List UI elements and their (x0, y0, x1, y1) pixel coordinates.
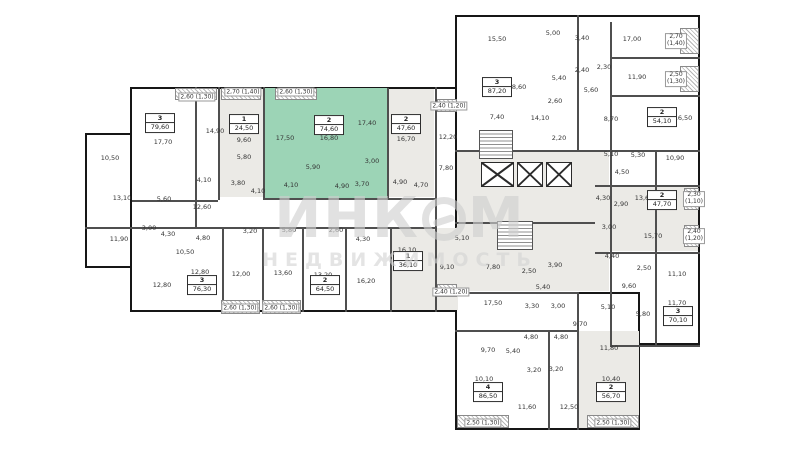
room-area-label: 5,60 (157, 195, 171, 203)
room-area-label: 3,20 (243, 227, 257, 235)
room-area-label: 17,40 (358, 119, 377, 127)
room-area-label: 8,70 (604, 115, 618, 123)
interior-wall (387, 88, 389, 198)
room-area-label: 4,40 (605, 252, 619, 260)
apartment-total-area: 70,10 (664, 317, 692, 325)
room-area-label: 2,60 (548, 97, 562, 105)
room-area-label: 9,60 (622, 282, 636, 290)
apartment-total-area: 47,70 (648, 201, 676, 209)
balcony-area-label: 2,60 (1,30) (178, 93, 215, 102)
floorplan-screenshot: 10,5013,1017,7014,905,604,1012,6011,903,… (0, 0, 800, 450)
room-area-label: 3,70 (355, 180, 369, 188)
room-area-label: 5,80 (636, 310, 650, 318)
room-area-label: 3,90 (548, 261, 562, 269)
interior-wall (455, 330, 577, 332)
balcony-area-label: 2,50 (1,30) (594, 419, 631, 428)
room-area-label: 4,10 (251, 187, 265, 195)
interior-wall (595, 185, 700, 187)
elevator-shaft-icon (481, 162, 514, 187)
interior-wall (610, 57, 700, 59)
balcony-area-label: 2,40 (1,20) (432, 288, 469, 297)
room-area-label: 4,80 (196, 234, 210, 242)
room-area-label: 2,60 (329, 226, 343, 234)
balcony-area-label: 2,70 (1,40) (224, 88, 261, 97)
room-area-label: 3,20 (549, 365, 563, 373)
room-area-label: 3,40 (575, 34, 589, 42)
room-area-label: 3,20 (527, 366, 541, 374)
room-area-label: 4,30 (161, 230, 175, 238)
room-area-label: 5,40 (506, 347, 520, 355)
room-area-label: 16,80 (320, 134, 339, 142)
staircase-icon (497, 221, 533, 250)
room-area-label: 3,00 (551, 302, 565, 310)
room-area-label: 2,30 (597, 63, 611, 71)
apartment-rooms-count: 2 (597, 383, 625, 392)
apartment-badge[interactable]: 254,10 (647, 107, 677, 127)
interior-wall (263, 87, 265, 198)
room-area-label: 9,70 (481, 346, 495, 354)
apartment-total-area: 56,70 (597, 393, 625, 401)
interior-wall (655, 150, 657, 345)
apartment-rooms-count: 2 (392, 115, 420, 124)
room-area-label: 4,30 (356, 235, 370, 243)
interior-wall (435, 87, 437, 312)
room-area-label: 9,10 (440, 263, 454, 271)
apartment-badge[interactable]: 379,60 (145, 113, 175, 133)
room-area-label: 12,20 (439, 133, 458, 141)
balcony-area-label: 2,60 (1,30) (277, 88, 314, 97)
apartment-badge[interactable]: 486,50 (473, 382, 503, 402)
interior-wall (610, 95, 700, 97)
room-area-label: 14,10 (531, 114, 550, 122)
room-area-label: 4,80 (524, 333, 538, 341)
apartment-badge[interactable]: 124,50 (229, 114, 259, 134)
room-area-label: 12,80 (153, 281, 172, 289)
room-area-label: 4,80 (554, 333, 568, 341)
room-area-label: 4,70 (414, 181, 428, 189)
balcony-area-label: 2,60 (1,30) (262, 304, 299, 313)
room-area-label: 3,00 (142, 224, 156, 232)
balcony-area-label: 2,30(1,10) (683, 191, 705, 207)
room-area-label: 13,60 (274, 269, 293, 277)
apartment-rooms-count: 2 (648, 108, 676, 117)
room-area-label: 17,70 (154, 138, 173, 146)
room-area-label: 4,50 (615, 168, 629, 176)
room-area-label: 15,50 (488, 35, 507, 43)
room-area-label: 9,70 (573, 320, 587, 328)
room-area-label: 10,90 (666, 154, 685, 162)
apartment-badge[interactable]: 136,10 (393, 251, 423, 271)
apartment-rooms-count: 2 (648, 191, 676, 200)
apartment-rooms-count: 2 (315, 116, 343, 125)
balcony-area-label: 2,40 (1,20) (430, 102, 467, 111)
room-area-label: 2,40 (575, 66, 589, 74)
room-area-label: 5,10 (604, 150, 618, 158)
room-area-label: 2,20 (552, 134, 566, 142)
room-area-label: 10,50 (176, 248, 195, 256)
floor-plan: 10,5013,1017,7014,905,604,1012,6011,903,… (0, 0, 800, 450)
apartment-badge[interactable]: 256,70 (596, 382, 626, 402)
room-area-label: 7,80 (439, 164, 453, 172)
interior-wall (390, 227, 392, 312)
apartment-total-area: 79,60 (146, 124, 174, 132)
room-area-label: 7,40 (490, 113, 504, 121)
apartment-total-area: 54,10 (648, 118, 676, 126)
apartment-badge[interactable]: 247,60 (391, 114, 421, 134)
apartment-total-area: 36,10 (394, 262, 422, 270)
room-area-label: 5,60 (584, 86, 598, 94)
apartment-rooms-count: 3 (146, 114, 174, 123)
room-area-label: 10,50 (101, 154, 120, 162)
room-area-label: 16,70 (397, 135, 416, 143)
room-area-label: 4,90 (335, 182, 349, 190)
balcony-area-label: 2,40(1,20) (683, 228, 705, 244)
room-area-label: 5,30 (631, 151, 645, 159)
apartment-total-area: 76,30 (188, 286, 216, 294)
room-area-label: 3,00 (602, 223, 616, 231)
room-area-label: 5,40 (552, 74, 566, 82)
room-area-label: 5,10 (455, 234, 469, 242)
room-area-label: 5,80 (282, 226, 296, 234)
room-area-label: 4,90 (393, 178, 407, 186)
room-area-label: 9,60 (237, 136, 251, 144)
interior-wall (132, 200, 218, 202)
room-area-label: 2,50 (522, 267, 536, 275)
room-area-label: 11,60 (518, 403, 537, 411)
apartment-total-area: 74,60 (315, 126, 343, 134)
room-area-label: 12,00 (232, 270, 251, 278)
balcony-area-label: 2,50(1,30) (665, 71, 687, 87)
room-area-label: 5,00 (546, 29, 560, 37)
room-area-label: 4,10 (284, 181, 298, 189)
apartment-badge[interactable]: 370,10 (663, 306, 693, 326)
room-area-label: 3,80 (231, 179, 245, 187)
apartment-total-area: 24,50 (230, 125, 258, 133)
apartment-rooms-count: 1 (230, 115, 258, 124)
interior-wall (302, 227, 304, 312)
elevator-shaft-icon (546, 162, 572, 187)
room-area-label: 5,10 (601, 303, 615, 311)
interior-wall (263, 198, 435, 200)
apartment-rooms-count: 3 (483, 78, 511, 87)
apartment-rooms-count: 4 (474, 383, 502, 392)
room-area-label: 12,50 (560, 403, 579, 411)
apartment-badge[interactable]: 274,60 (314, 115, 344, 135)
room-area-label: 2,90 (614, 200, 628, 208)
apartment-total-area: 64,50 (311, 286, 339, 294)
room-area-label: 17,50 (276, 134, 295, 142)
interior-wall (548, 330, 550, 430)
apartment-total-area: 47,60 (392, 125, 420, 133)
room-area-label: 17,00 (623, 35, 642, 43)
room-area-label: 7,80 (486, 263, 500, 271)
room-area-label: 11,90 (110, 235, 129, 243)
apartment-rooms-count: 3 (188, 276, 216, 285)
apartment-rooms-count: 2 (311, 276, 339, 285)
apartment-total-area: 87,20 (483, 88, 511, 96)
apartment-total-area: 86,50 (474, 393, 502, 401)
apartment-badge[interactable]: 247,70 (647, 190, 677, 210)
room-area-label: 17,50 (484, 299, 503, 307)
room-area-label: 3,30 (525, 302, 539, 310)
balcony-area-label: 2,50 (1,30) (464, 419, 501, 428)
balcony-area-label: 2,60 (1,30) (221, 304, 258, 313)
interior-wall (85, 227, 435, 229)
room-area-label: 14,90 (206, 127, 225, 135)
apartment-badge[interactable]: 264,50 (310, 275, 340, 295)
room-area-label: 11,10 (668, 270, 687, 278)
apartment-rooms-count: 1 (394, 252, 422, 261)
interior-wall (345, 227, 347, 312)
room-area-label: 2,50 (637, 264, 651, 272)
apartment-rooms-count: 3 (664, 307, 692, 316)
interior-wall (610, 345, 700, 347)
room-area-label: 12,60 (193, 203, 212, 211)
room-area-label: 4,30 (596, 194, 610, 202)
room-area-label: 16,20 (357, 277, 376, 285)
staircase-icon (479, 130, 513, 159)
room-area-label: 5,80 (237, 153, 251, 161)
room-area-label: 4,10 (197, 176, 211, 184)
room-area-label: 13,10 (113, 194, 132, 202)
room-area-label: 3,00 (365, 157, 379, 165)
apartment-badge[interactable]: 387,20 (482, 77, 512, 97)
elevator-shaft-icon (517, 162, 543, 187)
room-area-label: 5,40 (536, 283, 550, 291)
room-area-label: 15,70 (644, 232, 663, 240)
room-area-label: 11,80 (600, 344, 619, 352)
room-area-label: 5,90 (306, 163, 320, 171)
apartment-badge[interactable]: 376,30 (187, 275, 217, 295)
interior-wall (218, 87, 220, 200)
room-area-label: 11,90 (628, 73, 647, 81)
balcony-area-label: 2,70(1,40) (665, 33, 687, 49)
